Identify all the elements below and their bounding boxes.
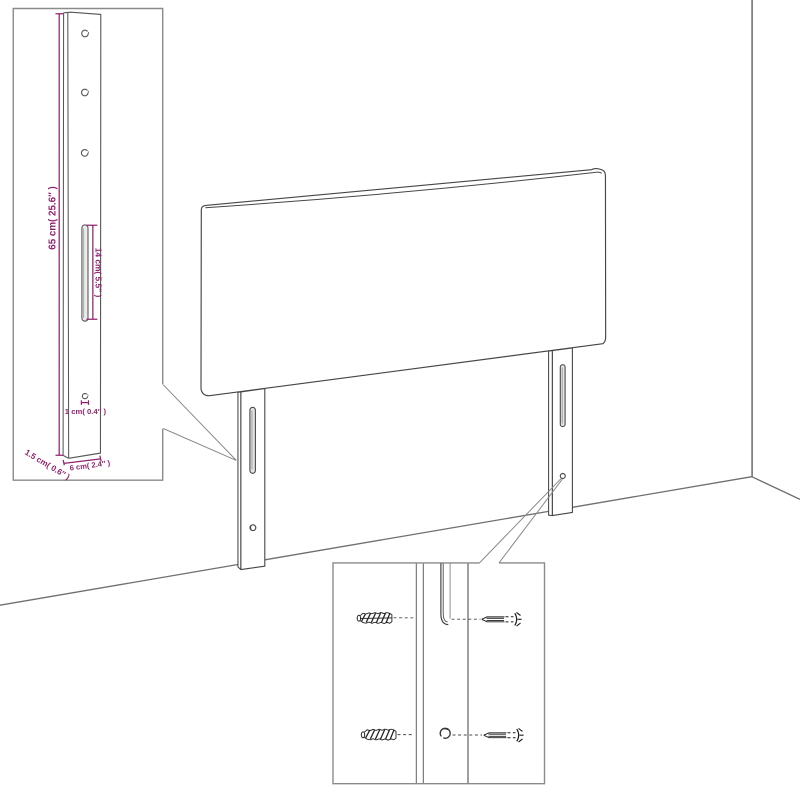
svg-text:65 cm( 25.6″ ): 65 cm( 25.6″ ) <box>47 186 58 250</box>
svg-text:14 cm( 5.5″ ): 14 cm( 5.5″ ) <box>93 248 103 298</box>
svg-text:1 cm( 0.4″ ): 1 cm( 0.4″ ) <box>65 407 107 416</box>
svg-text:6 cm( 2.4″ ): 6 cm( 2.4″ ) <box>69 458 111 472</box>
